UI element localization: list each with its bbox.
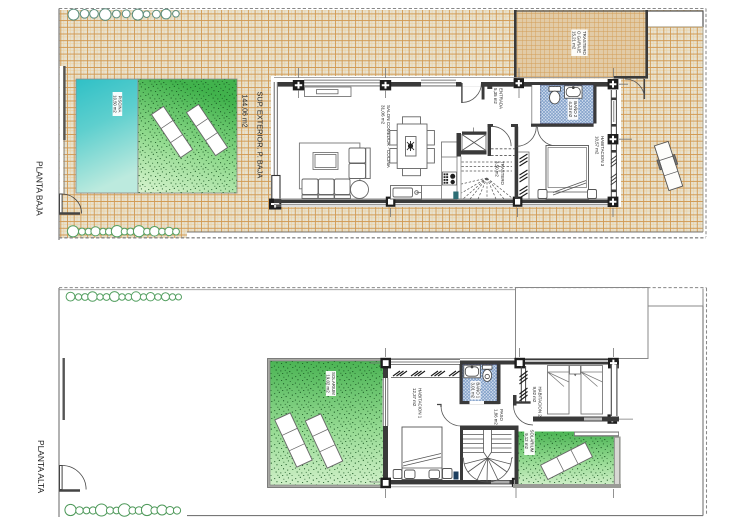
svg-text:1,86 m2: 1,86 m2 — [494, 409, 499, 425]
svg-text:PLANTA BAJA: PLANTA BAJA — [35, 161, 45, 216]
svg-text:10,57 m2: 10,57 m2 — [595, 136, 600, 155]
svg-text:SUP. EXTERIOR. P. BAJA: SUP. EXTERIOR. P. BAJA — [256, 92, 265, 179]
svg-text:TRASTERO: TRASTERO — [500, 161, 505, 185]
svg-text:HABITACION 3: HABITACION 3 — [600, 136, 605, 167]
svg-text:HABITACION 1: HABITACION 1 — [418, 388, 423, 419]
svg-text:9,82 m2: 9,82 m2 — [532, 387, 537, 403]
svg-text:12,37 m2: 12,37 m2 — [412, 388, 417, 407]
svg-text:BAÑO 2: BAÑO 2 — [573, 101, 578, 118]
svg-text:ENTRADA: ENTRADA — [499, 88, 504, 109]
svg-text:PASO: PASO — [499, 409, 504, 421]
svg-text:144,06 m2: 144,06 m2 — [241, 95, 248, 128]
svg-text:9,12 m2: 9,12 m2 — [524, 433, 529, 449]
svg-text:10,50 m2: 10,50 m2 — [113, 95, 118, 113]
svg-text:HABITACION 2: HABITACION 2 — [538, 387, 543, 418]
svg-text:SOLARIUM: SOLARIUM — [530, 430, 535, 453]
svg-text:31,06 m2: 31,06 m2 — [381, 105, 386, 125]
svg-text:PLANTA ALTA: PLANTA ALTA — [36, 440, 46, 493]
svg-text:5,35 m2: 5,35 m2 — [493, 88, 498, 104]
svg-text:3,50 m2: 3,50 m2 — [495, 161, 500, 177]
svg-text:3,01 m2: 3,01 m2 — [470, 383, 475, 399]
svg-text:19,02 m2: 19,02 m2 — [326, 374, 331, 393]
svg-text:15,21 m2: 15,21 m2 — [571, 31, 576, 50]
svg-text:4,23 m2: 4,23 m2 — [568, 101, 573, 117]
